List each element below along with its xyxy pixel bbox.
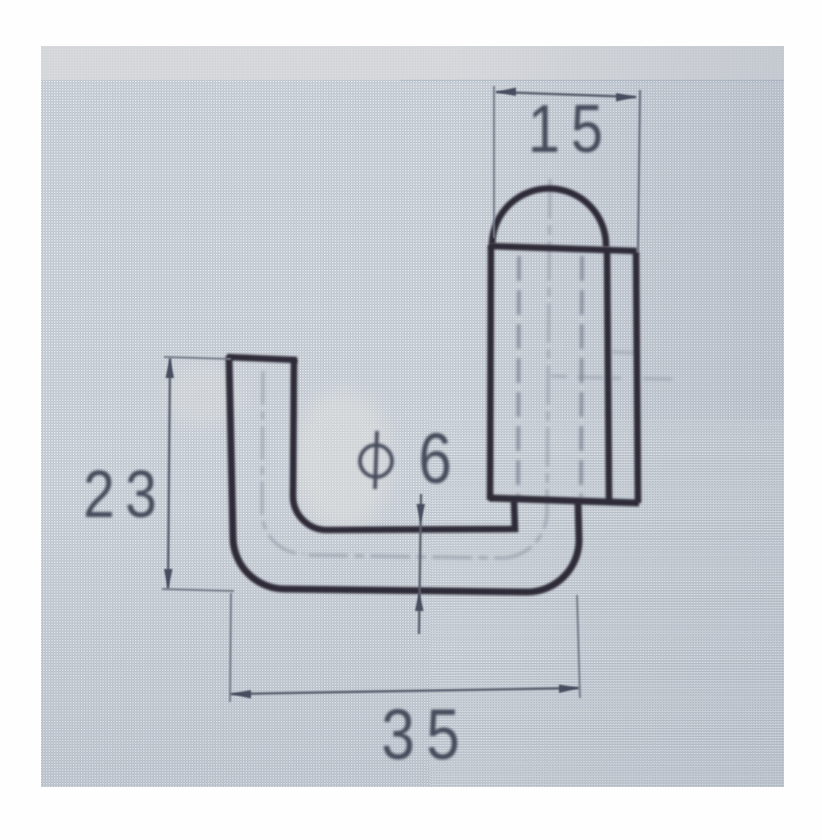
svg-text:3: 3 (125, 458, 157, 532)
svg-text:3: 3 (381, 694, 415, 774)
svg-text:1: 1 (528, 92, 560, 167)
svg-text:6: 6 (418, 418, 452, 498)
svg-text:2: 2 (83, 458, 115, 532)
svg-text:5: 5 (426, 694, 460, 774)
svg-text:5: 5 (571, 92, 603, 167)
